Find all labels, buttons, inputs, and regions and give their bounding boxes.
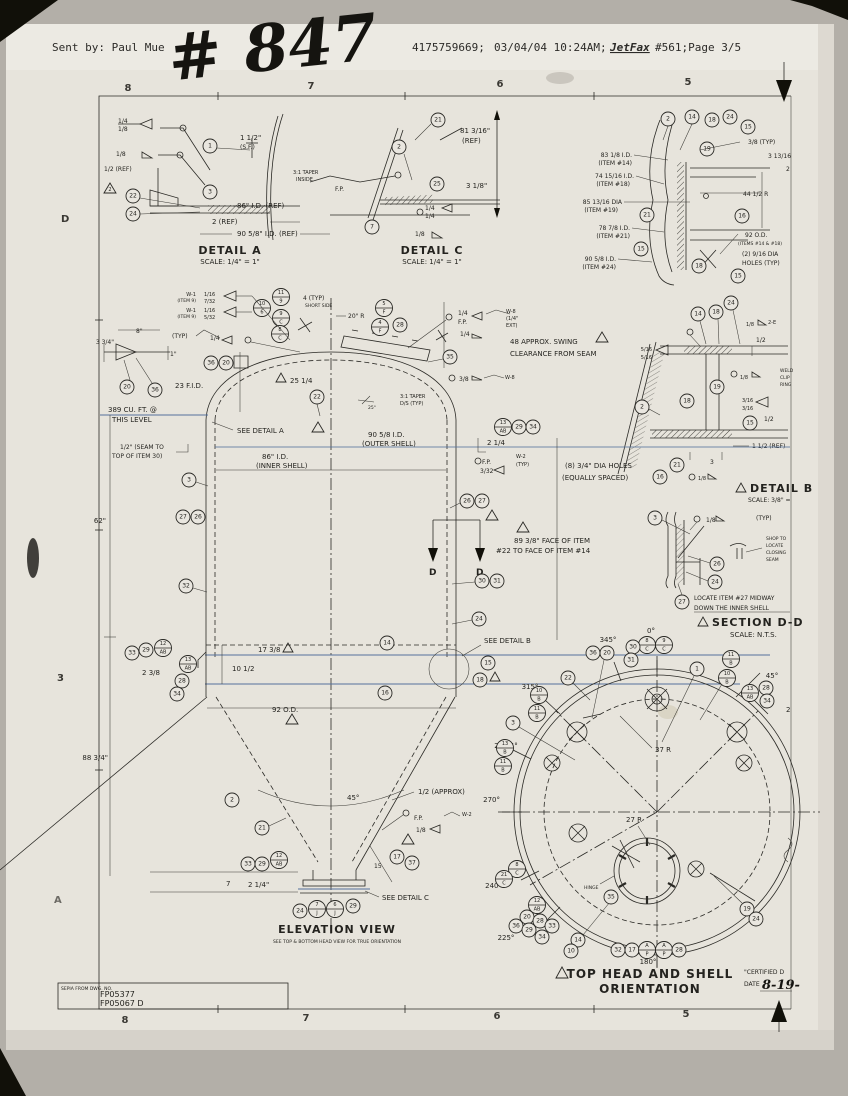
balloon-22: 22	[310, 390, 324, 404]
svg-text:13: 13	[185, 657, 191, 663]
svg-text:(ITEM #18): (ITEM #18)	[596, 181, 630, 188]
dim-214: 2 1/4	[487, 439, 505, 447]
dwg-no-2: FP05067 D	[100, 999, 144, 1008]
svg-text:RING: RING	[780, 382, 792, 388]
balloon-24: 24	[723, 110, 737, 124]
svg-text:22: 22	[129, 193, 137, 200]
balloon-21: 21	[431, 113, 445, 127]
svg-text:CLOSING: CLOSING	[766, 550, 787, 556]
balloon-16: 16	[378, 686, 392, 700]
angle-180: 180°	[640, 958, 657, 966]
svg-text:2: 2	[397, 144, 401, 151]
svg-text:33: 33	[548, 923, 556, 930]
zone-top-7: 7	[308, 81, 315, 92]
taper-note: 3:1 TAPER	[293, 170, 319, 176]
svg-text:16: 16	[738, 213, 746, 220]
balloon-24: 24	[749, 912, 763, 926]
svg-text:5/32: 5/32	[204, 315, 215, 321]
svg-text:14: 14	[694, 311, 702, 318]
stack-10-6: 106	[254, 300, 271, 317]
svg-text:27: 27	[179, 514, 187, 521]
svg-text:C: C	[502, 881, 506, 887]
angle-0: 0°	[647, 627, 655, 635]
svg-text:11: 11	[728, 652, 734, 658]
dim-238: 2 3/8	[142, 669, 160, 677]
balloon-26: 26	[460, 494, 474, 508]
weld-callout: 1/4	[118, 118, 128, 125]
stack-9-c: 9C	[273, 310, 290, 327]
elevation-title: ELEVATION VIEW	[278, 923, 396, 936]
svg-text:W-8: W-8	[505, 375, 515, 381]
svg-text:W-2: W-2	[516, 454, 526, 460]
svg-text:20: 20	[603, 650, 611, 657]
balloon-27: 27	[675, 595, 689, 609]
balloon-34: 34	[760, 694, 774, 708]
dim-90-id: 90 5/8" I.D. (REF)	[237, 230, 298, 238]
see-detail-c: SEE DETAIL C	[382, 894, 429, 902]
stack-ap: AP	[639, 942, 656, 959]
svg-text:12: 12	[534, 898, 540, 904]
dim-318: 3 1/8"	[466, 182, 487, 190]
dim-62: 62"	[94, 517, 106, 525]
balloon-21: 21	[670, 458, 684, 472]
svg-text:21: 21	[501, 872, 507, 878]
svg-text:31: 31	[493, 578, 501, 585]
svg-text:THIS LEVEL: THIS LEVEL	[111, 416, 152, 424]
detail-b-scale: SCALE: 3/8" =	[748, 497, 791, 504]
label-90-id: 90 5/8 I.D.	[585, 256, 616, 263]
balloon-18: 18	[473, 673, 487, 687]
svg-text:29: 29	[525, 927, 533, 934]
svg-text:10: 10	[536, 688, 542, 694]
svg-text:29: 29	[258, 861, 266, 868]
certified-label: "CERTIFIED D	[744, 969, 784, 976]
svg-text:14: 14	[574, 937, 582, 944]
stack-10b: 10B	[719, 670, 736, 687]
zone-left-3: 3	[57, 673, 64, 684]
svg-text:29: 29	[142, 647, 150, 654]
svg-text:W-1: W-1	[186, 292, 196, 298]
svg-text:16: 16	[381, 690, 389, 697]
balloon-18b: 18	[692, 259, 706, 273]
svg-text:3: 3	[187, 477, 191, 484]
svg-text:AB: AB	[160, 650, 167, 656]
svg-text:20: 20	[123, 384, 131, 391]
balloon-29d: 29	[346, 899, 360, 913]
dim-20r: 20" R	[348, 313, 364, 320]
svg-text:1/8: 1/8	[116, 151, 126, 158]
balloon-2: 2	[661, 112, 675, 126]
svg-text:SHORT SIDE: SHORT SIDE	[305, 303, 332, 309]
zone-top-8: 8	[125, 83, 132, 94]
svg-text:J: J	[315, 911, 317, 917]
zone-bottom-6: 6	[494, 1011, 501, 1022]
balloon-24: 24	[472, 612, 486, 626]
zone-top-6: 6	[497, 79, 504, 90]
balloon-15: 15	[741, 120, 755, 134]
balloon-26b: 26	[191, 510, 205, 524]
stack-4-f: 4F	[372, 319, 389, 336]
detail-a-title: DETAIL A	[198, 244, 261, 257]
balloon-17: 17	[390, 850, 404, 864]
svg-text:C: C	[662, 647, 666, 653]
svg-text:(ITEM #21): (ITEM #21)	[596, 233, 630, 240]
svg-text:20: 20	[523, 914, 531, 921]
svg-text:(TYP): (TYP)	[516, 462, 529, 468]
svg-text:9: 9	[279, 299, 282, 305]
svg-text:32: 32	[182, 583, 190, 590]
svg-text:1/16: 1/16	[204, 308, 215, 314]
balloon-3: 3	[203, 185, 217, 199]
balloon-33b: 33	[241, 857, 255, 871]
zone-left-d: D	[61, 214, 69, 225]
balloon-2: 2	[635, 400, 649, 414]
balloon-3: 3	[648, 511, 662, 525]
svg-text:A: A	[662, 943, 666, 949]
svg-text:B: B	[725, 680, 729, 686]
svg-text:28: 28	[178, 678, 186, 685]
svg-text:24: 24	[296, 908, 304, 915]
svg-text:28: 28	[396, 322, 404, 329]
svg-text:24: 24	[727, 300, 735, 307]
svg-text:3: 3	[710, 459, 714, 466]
dim-27r: 27 R	[626, 816, 642, 824]
label-3-1316: 3 13/16	[768, 153, 791, 160]
stack-11b: 11B	[723, 651, 740, 668]
svg-text:15: 15	[374, 863, 382, 870]
balloon-22: 22	[561, 671, 575, 685]
balloon-36: 36	[148, 383, 162, 397]
svg-text:1: 1	[695, 666, 699, 673]
balloon-28b: 28	[175, 674, 189, 688]
svg-text:8: 8	[515, 862, 518, 868]
svg-text:14: 14	[383, 640, 391, 647]
svg-text:36: 36	[151, 387, 159, 394]
balloon-34b: 34	[170, 687, 184, 701]
balloon-29c: 29	[255, 857, 269, 871]
svg-text:(ITEM #14): (ITEM #14)	[598, 160, 632, 167]
svg-text:C: C	[279, 320, 283, 326]
dim-1: 1"	[170, 351, 177, 358]
label-916-holes: (2) 9/16 DIA	[742, 251, 779, 258]
balloon-34b: 34	[535, 930, 549, 944]
svg-text:1/8: 1/8	[698, 476, 706, 482]
balloon-35: 35	[443, 350, 457, 364]
zone-bottom-5: 5	[683, 1009, 690, 1020]
balloon-15b: 15	[634, 242, 648, 256]
svg-text:33: 33	[244, 861, 252, 868]
svg-text:3: 3	[653, 515, 657, 522]
svg-text:1/8: 1/8	[118, 126, 128, 133]
balloon-28: 28	[759, 681, 773, 695]
angle-45: 45°	[347, 794, 359, 802]
dim-86id: 86" I.D.	[262, 453, 288, 461]
balloon-27b: 27	[176, 510, 190, 524]
balloon-18: 18	[705, 113, 719, 127]
svg-text:15: 15	[484, 660, 492, 667]
zone-left-a: A	[54, 895, 62, 906]
svg-text:18: 18	[683, 398, 691, 405]
svg-text:12: 12	[276, 853, 282, 859]
svg-text:37: 37	[408, 860, 416, 867]
svg-text:34: 34	[529, 424, 537, 431]
svg-text:5/16: 5/16	[641, 347, 652, 353]
angle-345: 345°	[600, 636, 617, 644]
svg-text:18: 18	[476, 677, 484, 684]
dim-214b: 2 1/4"	[248, 881, 269, 889]
svg-text:10: 10	[259, 301, 265, 307]
svg-text:B: B	[501, 768, 505, 774]
detail-b-title: DETAIL B	[750, 482, 813, 495]
paper-and-scan-artifacts	[0, 0, 848, 1096]
svg-text:2-E: 2-E	[768, 320, 776, 326]
svg-text:#22 TO FACE OF ITEM #14: #22 TO FACE OF ITEM #14	[496, 547, 591, 555]
svg-text:26: 26	[713, 561, 721, 568]
angle-270: 270°	[483, 796, 500, 804]
fax-scan-page: Sent by: Paul Mue 4175759669; 03/04/04 1…	[0, 0, 848, 1096]
balloon-31: 31	[624, 653, 638, 667]
svg-text:36: 36	[512, 923, 520, 930]
stack-ap-2: AP	[656, 942, 673, 959]
svg-text:21: 21	[434, 117, 442, 124]
svg-text:W-8: W-8	[506, 309, 516, 315]
section-cut-d: D	[429, 568, 436, 578]
fax-number: 4175759669;	[412, 41, 485, 54]
svg-text:3/32: 3/32	[480, 468, 494, 475]
svg-text:11: 11	[278, 290, 284, 296]
note-89-face: 89 3/8" FACE OF ITEM	[514, 537, 590, 545]
engineering-drawing: Sent by: Paul Mue 4175759669; 03/04/04 1…	[0, 0, 848, 1096]
balloon-24: 24	[724, 296, 738, 310]
balloon-14: 14	[380, 636, 394, 650]
svg-text:14: 14	[688, 114, 696, 121]
svg-text:2: 2	[230, 797, 234, 804]
detail-a-scale: SCALE: 1/4" = 1"	[200, 258, 260, 266]
svg-text:D/S (TYP): D/S (TYP)	[400, 401, 423, 407]
balloon-20: 20	[120, 380, 134, 394]
svg-text:SEAM: SEAM	[766, 557, 779, 563]
stack-13b: 13B	[497, 740, 514, 757]
dim-2514: 25 1/4	[290, 377, 313, 385]
svg-text:11: 11	[534, 706, 540, 712]
svg-text:19: 19	[713, 384, 721, 391]
svg-text:13: 13	[747, 686, 753, 692]
svg-text:5/16: 5/16	[641, 355, 652, 361]
svg-text:24: 24	[726, 114, 734, 121]
stack-6j: 6J	[327, 901, 344, 918]
fax-page-info: #561;Page 3/5	[655, 41, 741, 54]
svg-text:1/2: 1/2	[764, 416, 774, 423]
balloon-29: 29	[512, 420, 526, 434]
svg-text:17: 17	[628, 947, 636, 954]
svg-text:(TYP): (TYP)	[756, 515, 772, 522]
svg-text:7: 7	[315, 902, 318, 908]
svg-text:3/16: 3/16	[742, 398, 753, 404]
svg-text:6: 6	[260, 310, 263, 316]
balloon-33: 33	[125, 646, 139, 660]
svg-text:31: 31	[627, 657, 635, 664]
svg-text:15: 15	[637, 246, 645, 253]
balloon-29b: 29	[139, 643, 153, 657]
svg-text:13: 13	[502, 741, 508, 747]
svg-text:(ITEMS #14 & #18): (ITEMS #14 & #18)	[738, 241, 782, 247]
svg-text:INSIDE: INSIDE	[296, 177, 313, 183]
svg-text:DOWN THE INNER SHELL: DOWN THE INNER SHELL	[694, 605, 770, 612]
svg-text:3: 3	[208, 189, 212, 196]
stack-9c: 9C	[656, 637, 673, 654]
balloon-10: 10	[564, 944, 578, 958]
svg-text:1/8: 1/8	[706, 517, 716, 524]
note-seam: 1/2" (SEAM TO	[120, 444, 164, 451]
balloon-15c: 15	[731, 269, 745, 283]
balloon-32: 32	[611, 943, 625, 957]
svg-text:CLEARANCE FROM SEAM: CLEARANCE FROM SEAM	[510, 350, 597, 358]
svg-text:12: 12	[160, 641, 166, 647]
svg-text:2: 2	[786, 166, 790, 173]
stack-13ab: 13AB	[495, 419, 512, 436]
date-label: DATE	[744, 981, 760, 988]
svg-text:3:1 TAPER: 3:1 TAPER	[400, 394, 426, 400]
stack-13ab-b: 13AB	[180, 656, 197, 673]
balloon-36b: 36	[204, 356, 218, 370]
note-swing: 48 APPROX. SWING	[510, 338, 578, 346]
svg-text:18: 18	[695, 263, 703, 270]
svg-text:22: 22	[564, 675, 572, 682]
svg-text:P: P	[645, 952, 648, 958]
svg-text:1/8: 1/8	[740, 375, 748, 381]
svg-text:9: 9	[279, 311, 282, 317]
balloon-20: 20	[600, 646, 614, 660]
svg-text:(ITEM #19): (ITEM #19)	[584, 207, 618, 214]
svg-text:21: 21	[643, 212, 651, 219]
svg-text:15: 15	[744, 124, 752, 131]
svg-text:B: B	[503, 750, 507, 756]
svg-text:(ITEM 9): (ITEM 9)	[177, 314, 196, 320]
svg-text:(TYP): (TYP)	[172, 333, 188, 340]
svg-text:9: 9	[662, 638, 665, 644]
svg-text:C: C	[645, 647, 649, 653]
balloon-36: 36	[586, 646, 600, 660]
svg-text:AB: AB	[276, 862, 283, 868]
stack-8c: 8C	[639, 637, 656, 654]
svg-text:8: 8	[645, 638, 648, 644]
svg-text:7: 7	[370, 224, 374, 231]
svg-text:(OUTER SHELL): (OUTER SHELL)	[362, 440, 416, 448]
svg-text:5: 5	[382, 301, 385, 307]
svg-text:26: 26	[463, 498, 471, 505]
balloon-28: 28	[393, 318, 407, 332]
stack-7j: 7J	[309, 901, 326, 918]
svg-text:TOP OF ITEM 30): TOP OF ITEM 30)	[111, 453, 162, 460]
svg-text:7/32: 7/32	[204, 299, 215, 305]
label-85-dia: 85 13/16 DIA	[583, 199, 623, 206]
svg-text:2: 2	[640, 404, 644, 411]
balloon-16: 16	[735, 209, 749, 223]
svg-text:35: 35	[607, 894, 615, 901]
svg-text:B: B	[729, 661, 733, 667]
label-92-od: 92 O.D.	[745, 232, 768, 239]
dim-half-approx: 1/2 (APPROX)	[418, 788, 465, 796]
balloon-37: 37	[405, 856, 419, 870]
svg-text:1: 1	[208, 143, 212, 150]
svg-text:6: 6	[333, 902, 336, 908]
label-78-id: 78 7/8 I.D.	[599, 225, 630, 232]
svg-text:F: F	[383, 310, 386, 316]
svg-text:J: J	[333, 911, 335, 917]
svg-text:19: 19	[743, 906, 751, 913]
note-8-holes: (8) 3/4" DIA HOLES	[565, 462, 632, 470]
svg-text:1/8: 1/8	[746, 322, 754, 328]
svg-text:30: 30	[629, 644, 637, 651]
svg-text:34: 34	[538, 934, 546, 941]
svg-text:21: 21	[673, 462, 681, 469]
dim-37r: 37 R	[655, 746, 671, 754]
balloon-3: 3	[506, 716, 520, 730]
stack-11b-2: 11B	[529, 705, 546, 722]
svg-text:15: 15	[734, 273, 742, 280]
stack-13ab: 13AB	[742, 685, 759, 702]
section-dd-title: SECTION D-D	[712, 616, 804, 629]
orientation-title2: ORIENTATION	[599, 982, 701, 996]
dim-1012: 10 1/2	[232, 665, 254, 673]
svg-text:1/2 (REF): 1/2 (REF)	[104, 166, 132, 173]
orientation-title: TOP HEAD AND SHELL	[567, 967, 734, 981]
svg-text:35: 35	[446, 354, 454, 361]
balloon-2: 2	[225, 793, 239, 807]
svg-text:1/16: 1/16	[204, 292, 215, 298]
svg-text:WELD: WELD	[780, 368, 794, 374]
svg-text:(S.F.): (S.F.)	[240, 144, 255, 151]
svg-text:1/4: 1/4	[458, 310, 468, 317]
detail-c-title: DETAIL C	[401, 244, 464, 257]
svg-text:F.P.: F.P.	[482, 459, 491, 466]
balloon-1: 1	[690, 662, 704, 676]
svg-text:25°: 25°	[368, 405, 376, 411]
dim-92od: 92 O.D.	[272, 706, 298, 714]
locate-note: LOCATE ITEM #27 MIDWAY	[694, 595, 775, 602]
svg-text:26: 26	[194, 514, 202, 521]
angle-225: 225°	[498, 934, 515, 942]
svg-text:24: 24	[129, 211, 137, 218]
stray-2: 2	[786, 706, 790, 714]
balloon-31: 31	[490, 574, 504, 588]
svg-text:28: 28	[536, 918, 544, 925]
balloon-27: 27	[475, 494, 489, 508]
dim-8: 8"	[136, 328, 143, 335]
balloon-24: 24	[708, 575, 722, 589]
svg-text:18: 18	[712, 309, 720, 316]
dim-23-fid: 23 F.I.D.	[175, 382, 203, 390]
svg-text:F: F	[379, 329, 382, 335]
note-389cuft: 389 CU. FT. @	[108, 406, 157, 414]
svg-text:C: C	[278, 336, 282, 342]
stack-5-f: 5F	[376, 300, 393, 317]
balloon-24b: 24	[293, 904, 307, 918]
svg-text:C: C	[515, 871, 519, 877]
svg-text:24: 24	[475, 616, 483, 623]
svg-text:28: 28	[762, 685, 770, 692]
svg-text:29: 29	[349, 903, 357, 910]
svg-text:1/4: 1/4	[210, 335, 220, 342]
svg-text:(INNER SHELL): (INNER SHELL)	[256, 462, 308, 470]
dim-334: 3 3/4"	[96, 339, 114, 346]
balloon-18: 18	[709, 305, 723, 319]
fax-jetfax-brand: JetFax	[609, 41, 650, 54]
svg-text:28: 28	[675, 947, 683, 954]
svg-text:24: 24	[711, 579, 719, 586]
balloon-19: 19	[700, 142, 714, 156]
svg-text:LOCATE: LOCATE	[766, 543, 784, 549]
